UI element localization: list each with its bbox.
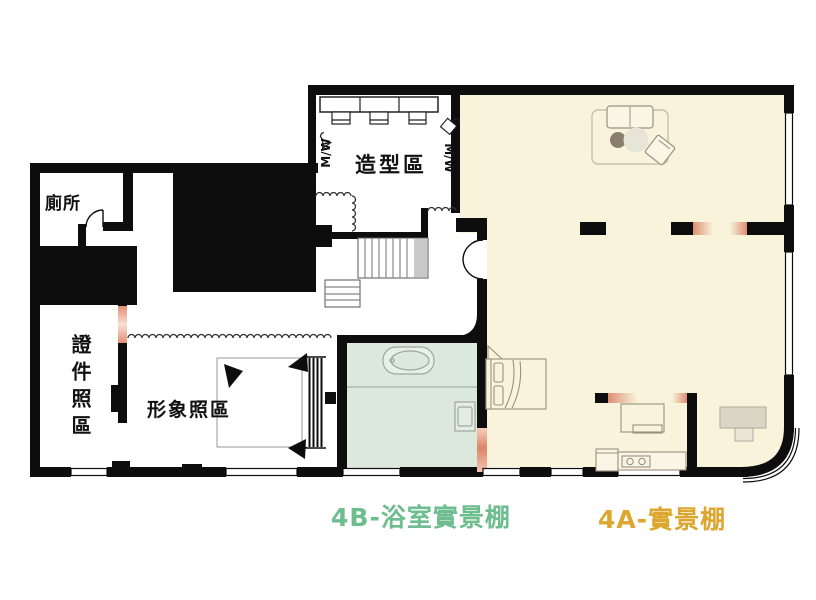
pink-wall (477, 428, 487, 472)
wall-stub (182, 464, 202, 469)
pink-wall (118, 306, 127, 343)
curtain-line (128, 335, 331, 338)
bath-studio-zone-label: 4B-浴室實景棚 (331, 498, 511, 534)
wall-bottom (520, 467, 551, 477)
wall-right (784, 375, 794, 432)
makeup-area (315, 97, 460, 148)
window (71, 469, 107, 476)
wall-right (784, 85, 794, 113)
backdrop-rolls (305, 357, 326, 448)
service-block-center (173, 167, 316, 292)
floor-plan: 廁所 造型區 證件照區 形象照區 M/W M/W 4B-浴室實景棚 4A-實景棚 (0, 0, 816, 600)
service-block-left (32, 246, 137, 305)
wall-left (30, 163, 40, 477)
desk (720, 407, 766, 428)
toilet-label: 廁所 (45, 189, 81, 214)
wall-top-right (308, 85, 794, 95)
coffee-table-light (624, 128, 649, 153)
wardrobe-rack-label-left: M/W (319, 136, 333, 170)
wall-toilet-door-stub (78, 224, 86, 248)
window (551, 469, 583, 476)
wardrobe-rack-label-right: M/W (442, 141, 456, 175)
double-door-arc (463, 240, 483, 260)
stair-landing (414, 239, 427, 277)
window (226, 469, 297, 476)
pink-wall (730, 222, 747, 235)
makeup-stool (332, 112, 426, 124)
pink-wall (693, 222, 713, 235)
curtain-line (316, 193, 351, 196)
styling-area-label: 造型區 (355, 149, 427, 179)
wall-right (784, 205, 794, 252)
wall-bath-left (337, 335, 347, 472)
portrait-area-label: 形象照區 (147, 395, 231, 422)
wall-kitchen-vertical (687, 393, 697, 472)
desk-chair (735, 428, 753, 441)
wall-bottom (30, 467, 71, 477)
pink-wall (672, 393, 687, 403)
bathtub-basin (391, 351, 429, 370)
wall-bottom (400, 467, 483, 477)
wall-bottom (297, 467, 343, 477)
wall-idphoto-bump (111, 385, 127, 412)
wall-toilet-bottom (103, 222, 133, 231)
pillow (494, 363, 503, 382)
makeup-counter (320, 97, 438, 112)
staircase (325, 238, 428, 307)
wall-corner-filler (455, 314, 477, 336)
wall-bath-top (337, 335, 487, 343)
pink-wall (608, 393, 637, 403)
main-studio-zone-label: 4A-實景棚 (598, 500, 726, 536)
window (786, 113, 793, 205)
toilet-door-arc (86, 210, 103, 227)
wall-partition-lower (595, 393, 608, 403)
studio-light-icon (224, 353, 308, 459)
wall-stub (325, 392, 336, 404)
double-door-arc (463, 260, 483, 279)
wall-bath-east (477, 232, 487, 240)
wall-partition-upper (747, 222, 784, 235)
photo-set (217, 353, 326, 459)
id-photo-area-label: 證件照區 (66, 334, 95, 434)
bed-headboard (486, 359, 491, 409)
curtain-line (352, 196, 356, 231)
window (343, 469, 400, 476)
pillow (494, 386, 503, 405)
wall-stub (112, 461, 130, 469)
window (483, 469, 520, 476)
fridge (596, 449, 618, 471)
wall-toilet-right (123, 173, 133, 230)
window (786, 252, 793, 375)
wall-partition-upper (580, 222, 606, 235)
wall-door-stub (456, 218, 487, 232)
wall-stairs-stub (421, 208, 428, 239)
service-block-bump (313, 225, 332, 247)
wall-partition-upper (671, 222, 693, 235)
